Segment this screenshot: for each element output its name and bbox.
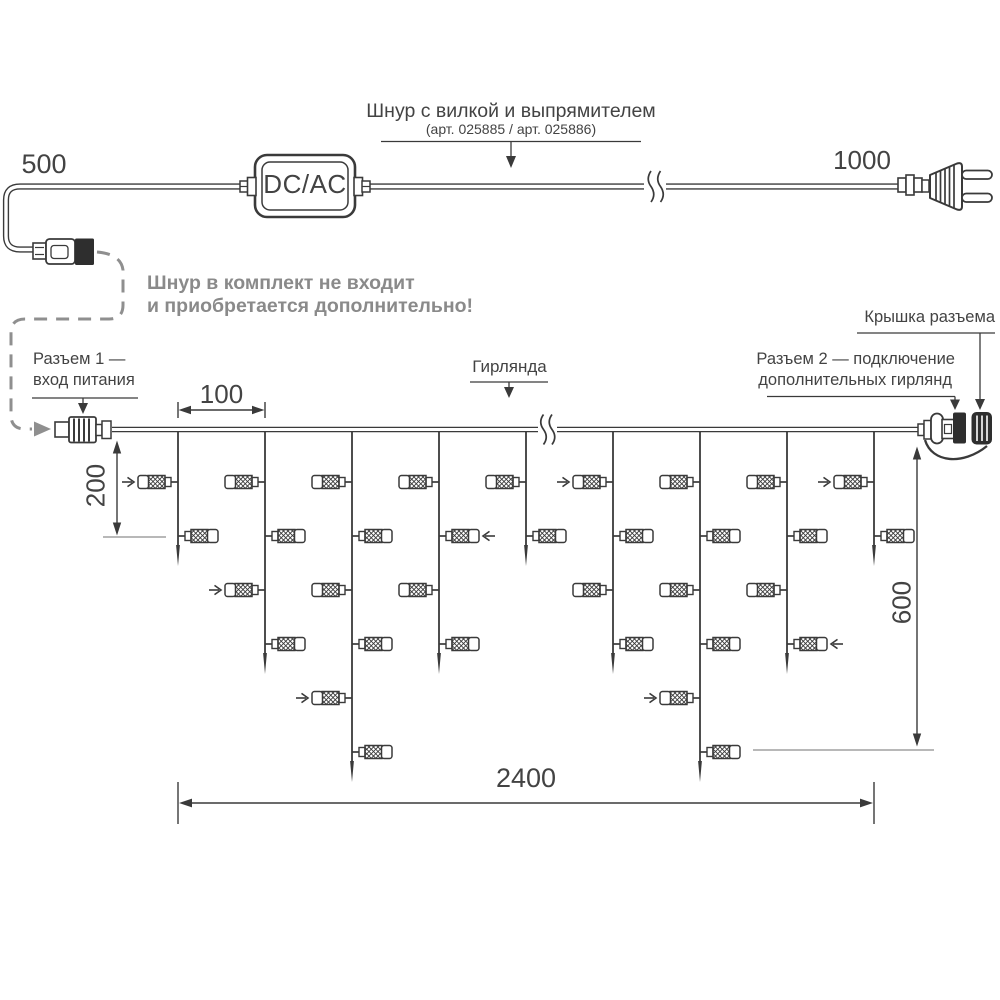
led-light xyxy=(352,746,392,759)
drop-tip xyxy=(263,653,267,674)
led-light xyxy=(486,476,526,489)
direction-arrow-icon xyxy=(818,477,830,486)
garland-drops xyxy=(122,432,914,782)
led-light xyxy=(526,530,566,543)
garland-technical-diagram: 500 1000 DC/AC Шнур с вилкой и выпрямите… xyxy=(0,0,1000,1000)
direction-arrow-icon xyxy=(209,585,221,594)
led-light xyxy=(747,584,787,597)
drop-tip xyxy=(350,761,354,782)
drop-tip xyxy=(437,653,441,674)
led-light xyxy=(178,530,218,543)
connector2-label-line1: Разъем 2 — подключение xyxy=(756,350,955,368)
dimension-600-label: 600 xyxy=(887,558,916,648)
led-light xyxy=(399,584,439,597)
cap-label: Крышка разъема xyxy=(864,308,995,326)
led-light xyxy=(312,584,352,597)
drop-tip xyxy=(785,653,789,674)
cord-break-icon xyxy=(648,171,663,202)
drop-tip xyxy=(611,653,615,674)
led-light xyxy=(265,638,305,651)
cord-label-articles: (арт. 025885 / арт. 025886) xyxy=(351,122,671,138)
dimension-2400-label: 2400 xyxy=(446,763,606,793)
led-light xyxy=(660,476,700,489)
garland-drop xyxy=(209,432,305,674)
dimension-lines xyxy=(103,402,934,824)
led-light xyxy=(265,530,305,543)
drop-tip xyxy=(176,545,180,566)
garland-label: Гирлянда xyxy=(444,357,575,376)
power-plug xyxy=(898,160,992,212)
ac-cord xyxy=(369,171,899,202)
connector-2 xyxy=(918,412,992,459)
down-arrow-icon xyxy=(975,399,985,410)
not-included-note-line1: Шнур в комплект не входит xyxy=(147,272,415,295)
led-light xyxy=(573,584,613,597)
led-light xyxy=(644,692,700,705)
dc-cord-connector xyxy=(33,239,94,266)
dc-cord xyxy=(6,187,241,250)
led-light xyxy=(700,746,740,759)
down-arrow-icon xyxy=(506,156,516,168)
garland-drop xyxy=(818,432,914,566)
led-light xyxy=(352,638,392,651)
led-light xyxy=(747,476,787,489)
direction-arrow-icon xyxy=(122,477,134,486)
down-arrow-icon xyxy=(950,400,960,411)
garland-drop xyxy=(557,432,653,674)
led-light xyxy=(439,530,495,543)
led-light xyxy=(557,476,613,489)
direction-arrow-icon xyxy=(831,639,843,648)
dimension-200-label: 200 xyxy=(81,441,110,531)
direction-arrow-icon xyxy=(557,477,569,486)
led-light xyxy=(209,584,265,597)
direction-arrow-icon xyxy=(644,693,656,702)
led-light xyxy=(818,476,874,489)
led-light xyxy=(399,476,439,489)
connector1-label-line1: Разъем 1 — xyxy=(33,350,125,368)
led-light xyxy=(700,638,740,651)
led-light xyxy=(787,530,827,543)
led-light xyxy=(122,476,178,489)
connector1-label-line2: вход питания xyxy=(33,371,135,389)
led-light xyxy=(225,476,265,489)
down-arrow-icon xyxy=(504,387,514,398)
led-light xyxy=(660,584,700,597)
garland-drop xyxy=(644,432,740,782)
dimension-1000-label: 1000 xyxy=(830,146,894,175)
connector-cap xyxy=(972,412,993,445)
led-light xyxy=(787,638,843,651)
wire-break-icon xyxy=(541,415,555,445)
dimension-100-label: 100 xyxy=(178,380,265,409)
led-light xyxy=(439,638,479,651)
connector-1 xyxy=(55,417,111,443)
led-light xyxy=(296,692,352,705)
down-arrow-icon xyxy=(78,403,88,414)
not-included-note-line2: и приобретается дополнительно! xyxy=(147,295,473,318)
gray-arrow-icon xyxy=(34,422,51,437)
garland-wire xyxy=(112,415,918,445)
led-light xyxy=(613,530,653,543)
direction-arrow-icon xyxy=(296,693,308,702)
cord-label: Шнур с вилкой и выпрямителем xyxy=(351,101,671,123)
led-light xyxy=(613,638,653,651)
drop-tip xyxy=(524,545,528,566)
garland-drop xyxy=(747,432,843,674)
garland-drop xyxy=(122,432,218,566)
led-light xyxy=(700,530,740,543)
dashed-connection-path xyxy=(11,252,123,437)
drop-tip xyxy=(872,545,876,566)
drop-tip xyxy=(698,761,702,782)
led-light xyxy=(352,530,392,543)
converter-label: DC/AC xyxy=(255,170,355,199)
led-light xyxy=(874,530,914,543)
garland-drop xyxy=(486,432,566,566)
connector2-label-line2: дополнительных гирлянд xyxy=(758,371,952,389)
garland-drop xyxy=(296,432,392,782)
dimension-500-label: 500 xyxy=(13,149,75,179)
direction-arrow-icon xyxy=(483,531,495,540)
led-light xyxy=(312,476,352,489)
garland-drop xyxy=(399,432,495,674)
